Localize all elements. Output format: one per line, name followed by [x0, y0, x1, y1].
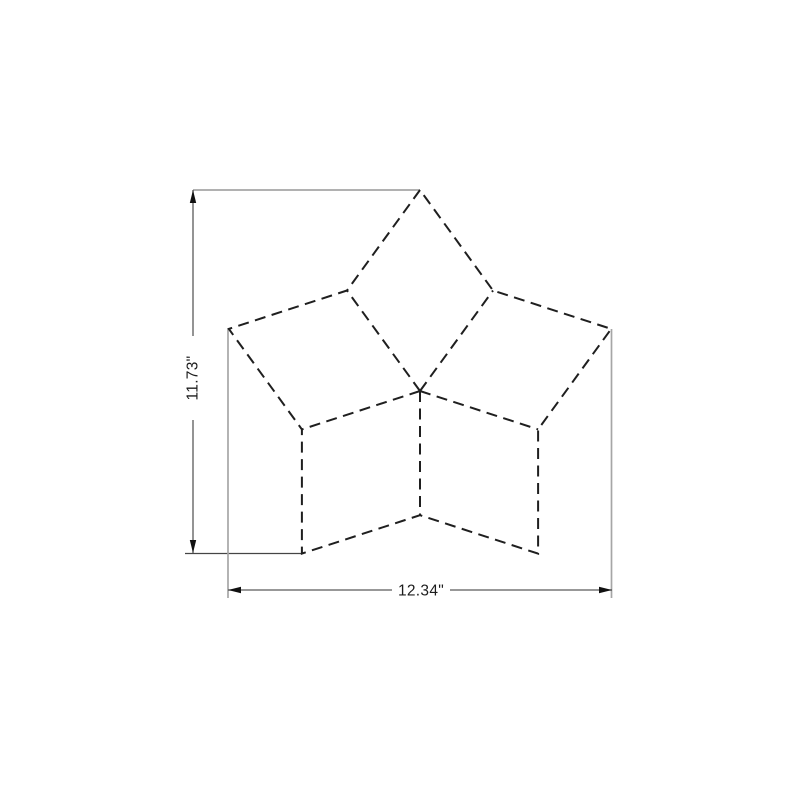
arrow-up-icon	[190, 190, 196, 203]
arrow-left-icon	[228, 587, 241, 593]
arrow-right-icon	[599, 587, 612, 593]
arrow-down-icon	[190, 540, 196, 553]
height-dimension-label: 11.73"	[185, 356, 202, 401]
pattern-drawing-svg: 11.73" 12.34"	[0, 0, 800, 800]
star-spoke	[347, 291, 420, 392]
extension-lines	[185, 190, 612, 598]
star-spoke	[420, 391, 538, 429]
width-dimension-label: 12.34"	[398, 583, 444, 600]
star-spoke	[302, 391, 420, 429]
star-pattern	[229, 190, 611, 554]
drawing-canvas: 11.73" 12.34"	[0, 0, 800, 800]
width-dimension: 12.34"	[228, 580, 612, 600]
star-spoke	[420, 291, 493, 392]
height-dimension: 11.73"	[183, 190, 203, 553]
